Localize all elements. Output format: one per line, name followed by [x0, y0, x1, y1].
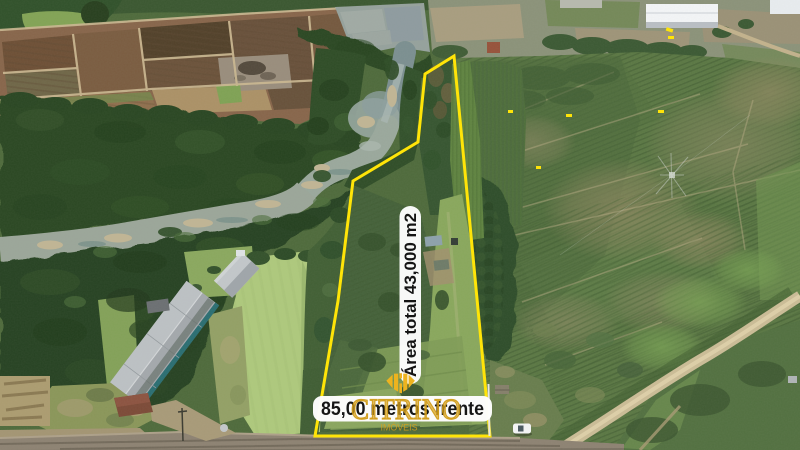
svg-text:IMÓVEIS: IMÓVEIS	[381, 423, 418, 433]
svg-text:Área total 43,000 m2: Área total 43,000 m2	[401, 213, 420, 377]
svg-text:CITRINO: CITRINO	[351, 393, 461, 426]
